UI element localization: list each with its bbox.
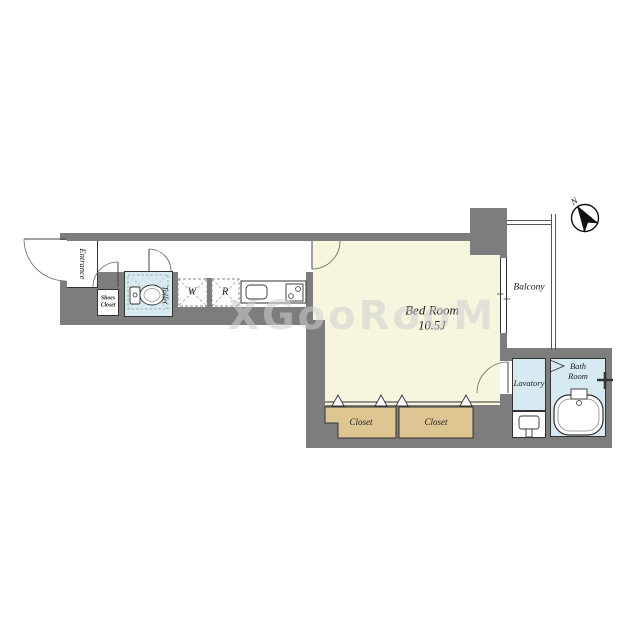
wash-basin-nook (512, 411, 546, 438)
lavatory-label: Lavatory (514, 379, 545, 389)
watermark: XGooRooM (228, 293, 496, 339)
bedroom-door-opening (306, 241, 313, 272)
entrance-label: Entrance (77, 248, 87, 279)
shoes-closet-label: Shoes Closet (97, 295, 119, 308)
wall-pillar (470, 208, 507, 255)
entrance-door-opening (60, 240, 67, 281)
balcony-label: Balcony (513, 283, 544, 294)
closet-left-label: Closet (349, 417, 372, 427)
north-arrow-icon (570, 201, 599, 233)
toilet-label: Toilet (160, 286, 169, 304)
wall-washer-divider (206, 278, 212, 307)
compass: N (564, 192, 598, 232)
closet-right-label: Closet (424, 417, 447, 427)
washer-label: W (188, 286, 196, 298)
corridor (67, 241, 308, 272)
bathroom-label: Bath Room (560, 362, 596, 382)
floor-plan: N Entrance Shoes Closet Toilet W R Bed R… (0, 0, 640, 640)
north-label: N (568, 195, 580, 208)
lavatory-door-opening (500, 361, 512, 394)
